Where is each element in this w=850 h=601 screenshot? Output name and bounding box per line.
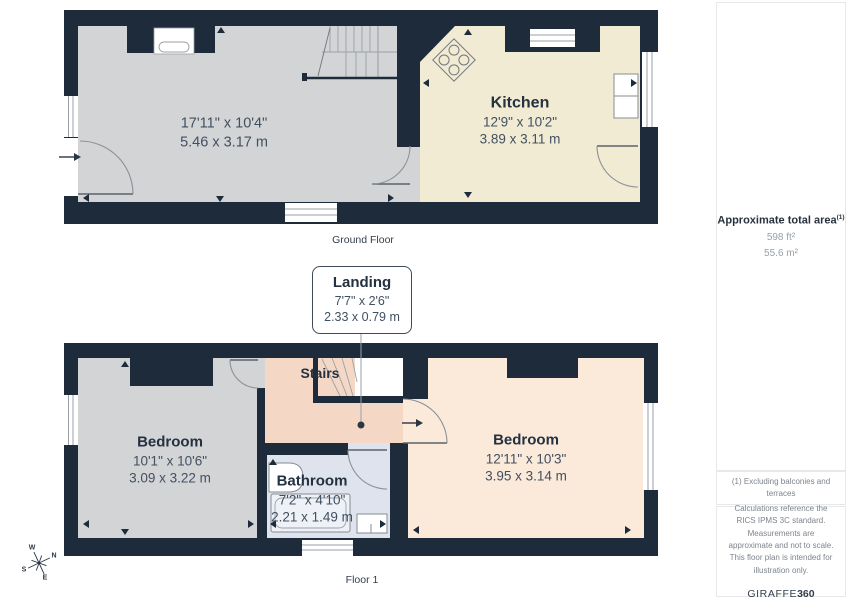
total-area-m: 55.6 m² [764, 248, 798, 259]
total-area-ft: 598 ft² [767, 232, 795, 243]
landing-dims-ft: 7'7" x 2'6" [335, 293, 390, 309]
living-kitchen-wall [397, 26, 420, 147]
ground-floor-caption: Ground Floor [332, 234, 394, 246]
bedroom-left-name: Bedroom [129, 433, 211, 452]
footnote-text: (1) Excluding balconies and terraces [724, 476, 838, 501]
total-area-footnote-marker: (1) [837, 214, 845, 221]
brand-suffix: 360 [797, 588, 815, 600]
bathroom-dims-ft: 7'2" x 4'10" [271, 491, 353, 508]
living-room-dims-m: 5.46 x 3.17 m [180, 133, 268, 152]
compass-east-label: E [43, 575, 48, 582]
bedroom-right-dims-m: 3.95 x 3.14 m [485, 467, 567, 484]
landing-dims-m: 2.33 x 0.79 m [324, 309, 400, 325]
living-room-label: 17'11" x 10'4" 5.46 x 3.17 m [180, 114, 268, 151]
total-area-heading: Approximate total area(1) [717, 214, 844, 227]
footnote-panel: (1) Excluding balconies and terraces [716, 471, 846, 505]
bedroom-left-chimney [130, 358, 213, 386]
bedroom-left-label: Bedroom 10'1" x 10'6" 3.09 x 3.22 m [129, 433, 211, 486]
living-bottom-window [285, 203, 337, 222]
bedroom-right-dims-ft: 12'11" x 10'3" [485, 450, 567, 467]
bathroom-window [302, 540, 353, 556]
floorplan-page: 17'11" x 10'4" 5.46 x 3.17 m Kitchen 12'… [0, 0, 850, 601]
sink-icon [614, 74, 638, 118]
ground-floor-plan [59, 10, 658, 224]
bathroom-label: Bathroom 7'2" x 4'10" 2.21 x 1.49 m [271, 472, 353, 525]
compass-west-label: W [29, 545, 36, 552]
compass-north-label: N [51, 553, 56, 560]
kitchen-label: Kitchen 12'9" x 10'2" 3.89 x 3.11 m [480, 94, 561, 149]
total-area-panel: Approximate total area(1) 598 ft² 55.6 m… [716, 2, 846, 471]
bedroom-right-window [643, 403, 658, 490]
bedroom-left-dims-m: 3.09 x 3.22 m [129, 469, 211, 486]
bathroom-name: Bathroom [271, 472, 353, 491]
fireplace-icon [154, 28, 194, 54]
kitchen-dims-m: 3.89 x 3.11 m [480, 131, 561, 148]
compass-icon [28, 552, 50, 574]
kitchen-dims-ft: 12'9" x 10'2" [480, 114, 561, 131]
total-area-label: Approximate total area [717, 215, 836, 227]
floor1-caption: Floor 1 [346, 574, 379, 586]
bathroom-right-wall [390, 443, 408, 538]
bedroom-right-name: Bedroom [485, 431, 567, 450]
bedroom-right-chimney [507, 358, 578, 378]
disclaimer-text: Calculations reference the RICS IPMS 3C … [725, 503, 837, 577]
giraffe360-logo: GIRAFFE360 [747, 588, 814, 600]
stairs-label: Stairs [301, 365, 340, 381]
kitchen-top-window [530, 29, 575, 47]
bedroom-right-label: Bedroom 12'11" x 10'3" 3.95 x 3.14 m [485, 431, 567, 484]
compass-south-label: S [22, 567, 27, 574]
bedroom-left-dims-ft: 10'1" x 10'6" [129, 452, 211, 469]
bathroom-dims-m: 2.21 x 1.49 m [271, 508, 353, 525]
landing-callout: Landing 7'7" x 2'6" 2.33 x 0.79 m [312, 266, 412, 334]
disclaimer-panel: Calculations reference the RICS IPMS 3C … [716, 506, 846, 597]
living-left-window [64, 96, 78, 137]
kitchen-right-window [642, 52, 658, 127]
kitchen-name: Kitchen [480, 94, 561, 114]
brand-name: GIRAFFE [747, 588, 797, 600]
living-room-dims-ft: 17'11" x 10'4" [180, 114, 268, 133]
bedroom-left-window [64, 395, 78, 445]
landing-name: Landing [333, 274, 391, 293]
